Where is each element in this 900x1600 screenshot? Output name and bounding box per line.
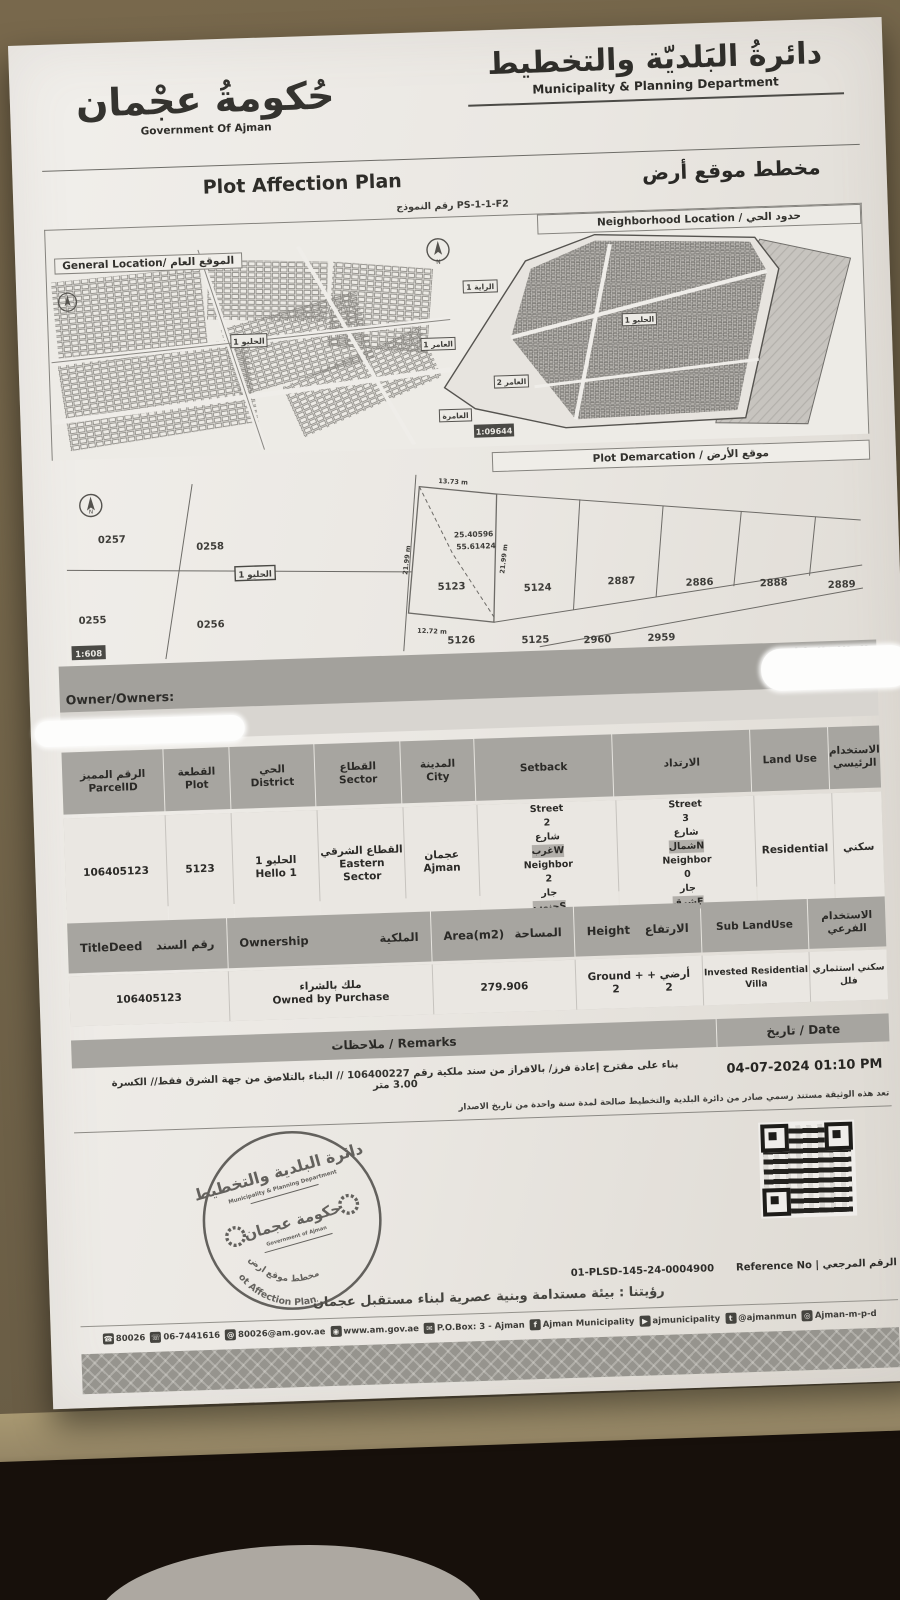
qr-code — [762, 1124, 853, 1215]
svg-text:21.99 m: 21.99 m — [498, 544, 509, 575]
col-setback-ar: الارتداد — [612, 730, 751, 797]
footer-item-facebook: fAjman Municipality — [530, 1316, 635, 1330]
ownership-value: ملك بالشراءOwned by Purchase — [228, 964, 433, 1021]
youtube-icon: ▶ — [639, 1315, 650, 1326]
col-city: المدينةCity — [400, 739, 475, 803]
phone-icon: ☎ — [103, 1333, 114, 1344]
neighborhood-map-compass: N — [427, 238, 450, 266]
setback-north-east: Street3شارعشمالN Neighbor0جارشرقE — [616, 796, 757, 912]
document-paper: حُكومةُ عجْمان Government Of Ajman دائرة… — [8, 17, 900, 1409]
svg-text:1:09644: 1:09644 — [476, 426, 513, 436]
mainuse-value: سكني — [833, 791, 885, 904]
svg-text:العامر 2: العامر 2 — [496, 377, 526, 387]
svg-text:الحليو 1: الحليو 1 — [625, 315, 655, 325]
svg-text:العامر 1: العامر 1 — [423, 339, 453, 349]
svg-text:2959: 2959 — [647, 632, 675, 644]
svg-text:2960: 2960 — [583, 634, 611, 646]
svg-text:25.40596: 25.40596 — [454, 529, 494, 539]
col-sector: القطاعSector — [315, 741, 402, 806]
ajman-government-logo: حُكومةُ عجْمان Government Of Ajman — [75, 75, 335, 140]
footer-item-phone: ☎80026 — [103, 1332, 146, 1344]
plot-value: 5123 — [166, 813, 234, 926]
general-map-badge: الحليو 1 — [231, 334, 267, 348]
facebook-icon: f — [530, 1319, 541, 1330]
district-value: الحليو 1Hello 1 — [232, 810, 321, 924]
col-plot: القطعةPlot — [163, 747, 230, 811]
reference-number: 01-PLSD-145-24-0004900 — [571, 1263, 715, 1279]
stamp-qr-section: دائرة البلدية والتخطيط Municipality & Pl… — [74, 1106, 897, 1303]
document-title-ar: مخطط موقع أرض — [642, 155, 821, 185]
demarcation-scale-badge: 1:608 — [71, 645, 105, 660]
document-title-en: Plot Affection Plan — [202, 170, 402, 199]
svg-text:5124: 5124 — [524, 582, 552, 594]
svg-text:الحليو 1: الحليو 1 — [233, 337, 265, 347]
footer-item-website: ◉www.am.gov.ae — [330, 1323, 419, 1337]
svg-text:2886: 2886 — [686, 577, 714, 589]
subuse-ar-value: سكني استثماري فلل — [809, 949, 888, 1002]
globe-icon: ◉ — [330, 1326, 341, 1337]
svg-text:0256: 0256 — [197, 619, 225, 631]
date-value: 04-07-2024 01:10 PM — [718, 1041, 891, 1091]
svg-text:55.61424: 55.61424 — [456, 541, 496, 551]
svg-text:0258: 0258 — [196, 541, 224, 553]
svg-text:الحليو 1: الحليو 1 — [238, 570, 272, 581]
svg-text:الراية 1: الراية 1 — [466, 282, 494, 292]
col-area: Area(m2)المساحة — [431, 907, 575, 962]
reference-label: Reference No | الرقم المرجعي — [736, 1257, 897, 1273]
owner-label-en: Owner/Owners: — [65, 689, 174, 708]
svg-text:5126: 5126 — [447, 635, 475, 647]
parcelid-value: 106405123 — [64, 815, 169, 929]
city-value: عجمانAjman — [404, 805, 481, 918]
titledeed-value: 106405123 — [69, 971, 229, 1026]
svg-text:2887: 2887 — [607, 575, 635, 587]
col-titledeed: TitleDeedرقم السند — [67, 918, 227, 973]
instagram-icon: ◎ — [802, 1310, 813, 1321]
col-subuse-ar: الاستخدام الفرعي — [807, 896, 886, 949]
svg-text:العامرة: العامرة — [442, 411, 468, 421]
sublanduse-value: Invested Residential Villa — [703, 952, 810, 1005]
svg-text:21.99 m: 21.99 m — [401, 545, 412, 576]
svg-text:5125: 5125 — [521, 634, 549, 646]
col-height: Heightالارتفاع — [574, 903, 702, 957]
svg-text:0257: 0257 — [98, 534, 126, 546]
redaction-mark — [760, 644, 900, 691]
municipality-dept-logo: دائرةُ البَلديّة والتخطيط Municipality &… — [466, 36, 844, 106]
photo-scene: حُكومةُ عجْمان Government Of Ajman دائرة… — [0, 0, 900, 1600]
pobox-icon: ✉ — [424, 1323, 435, 1334]
col-district: الحيDistrict — [229, 744, 316, 809]
general-location-map: الحليو 1 — [48, 242, 454, 457]
document-content: حُكومةُ عجْمان Government Of Ajman دائرة… — [8, 17, 900, 1409]
svg-text:12.72 m: 12.72 m — [417, 627, 447, 636]
svg-text:1:608: 1:608 — [75, 649, 102, 660]
svg-text:5123: 5123 — [438, 581, 466, 593]
neighborhood-location-map: N الراية 1 العامر 1 العامر 2 العامرة الح… — [409, 206, 868, 445]
height-value: Ground + 2أرضي + 2 — [576, 956, 704, 1010]
footer-item-youtube: ▶ajmunicipality — [639, 1313, 720, 1327]
fax-icon: ☏ — [150, 1332, 161, 1343]
footer-item-fax: ☏06-7441616 — [150, 1330, 220, 1343]
setback-west-south: Street2شارعغربW Neighbor2جارجنوبS — [477, 800, 618, 916]
svg-text:2889: 2889 — [828, 579, 856, 591]
gov-logo-calligraphy: حُكومةُ عجْمان — [75, 75, 335, 124]
svg-text:N: N — [89, 509, 93, 515]
svg-text:N: N — [436, 259, 441, 266]
redaction-mark — [34, 715, 245, 748]
footer-item-instagram: ◎Ajman-m-p-d — [802, 1308, 877, 1321]
twitter-icon: t — [725, 1313, 736, 1324]
sector-value: القطاع الشرقيEastern Sector — [318, 807, 407, 921]
col-setback-en: Setback — [474, 734, 613, 801]
svg-text:2888: 2888 — [760, 577, 788, 589]
landuse-value: Residential — [755, 793, 836, 906]
header: حُكومةُ عجْمان Government Of Ajman دائرة… — [39, 36, 860, 157]
svg-text:0255: 0255 — [78, 615, 106, 627]
qr-finder-icon — [762, 1188, 791, 1217]
area-value: 279.906 — [432, 960, 576, 1015]
reference-row: 01-PLSD-145-24-0004900 Reference No | ال… — [571, 1257, 897, 1279]
maps-section: الحليو 1 — [44, 203, 869, 461]
qr-finder-icon — [760, 1124, 789, 1153]
demarcation-compass: N — [79, 494, 102, 517]
col-ownership: Ownershipالملكية — [227, 911, 432, 968]
col-sublanduse: Sub LandUse — [701, 899, 808, 952]
svg-text:13.73 m: 13.73 m — [438, 477, 468, 487]
qr-finder-icon — [824, 1122, 853, 1151]
col-parcelid: الرقم المميزParcelID — [61, 749, 164, 814]
col-landuse: Land Use — [750, 727, 829, 792]
footer-item-twitter: t@ajmanmun — [725, 1311, 797, 1324]
demarcation-district-badge: الحليو 1 — [235, 565, 275, 580]
col-mainuse: الاستخدام الرئيسي — [828, 725, 881, 789]
footer-item-pobox: ✉P.O.Box: 3 - Ajman — [424, 1320, 525, 1334]
plot-demarcation-drawing: N 0257 0258 0255 0256 5123 5124 2887 288… — [53, 460, 876, 665]
